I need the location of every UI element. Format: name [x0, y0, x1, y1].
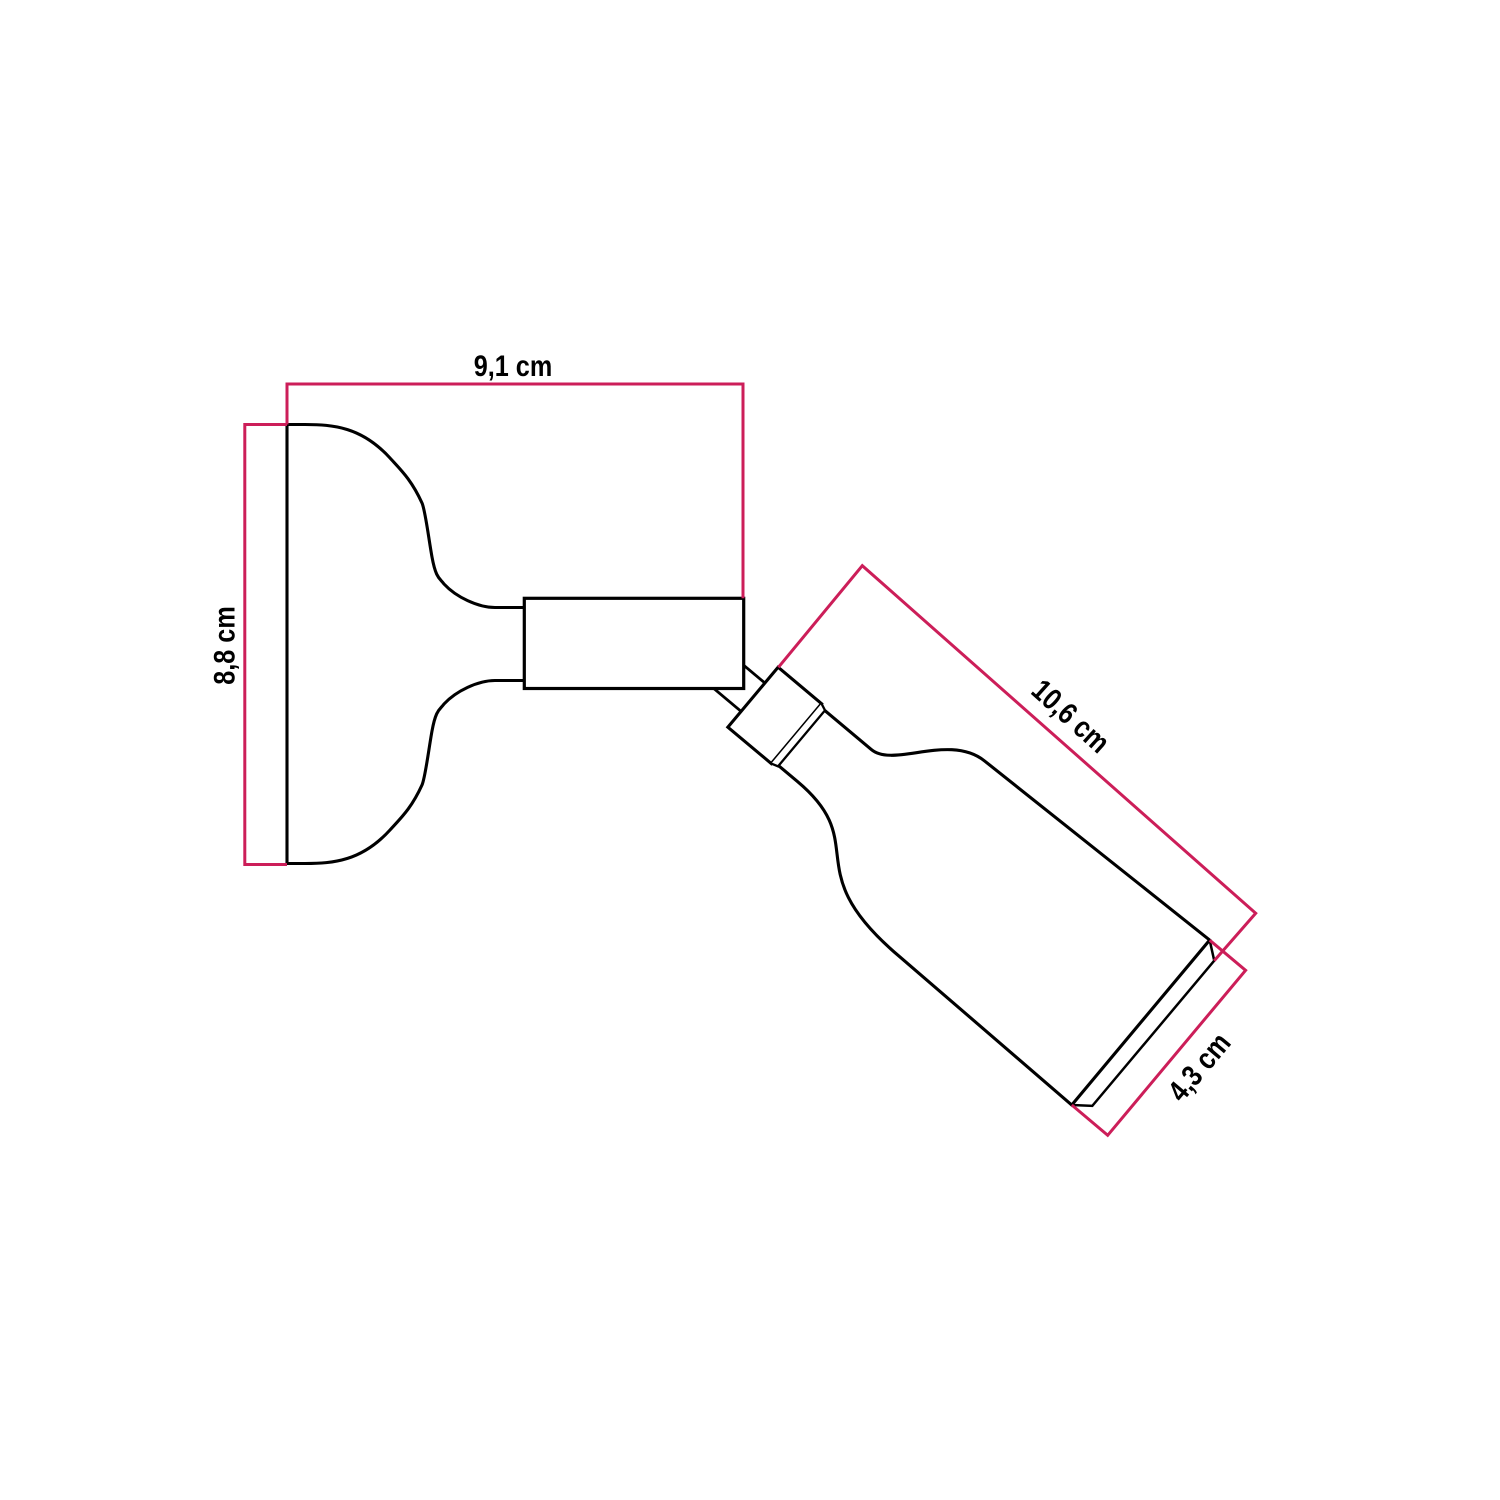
svg-text:9,1 cm: 9,1 cm — [474, 349, 552, 383]
svg-text:8,8 cm: 8,8 cm — [207, 606, 241, 684]
